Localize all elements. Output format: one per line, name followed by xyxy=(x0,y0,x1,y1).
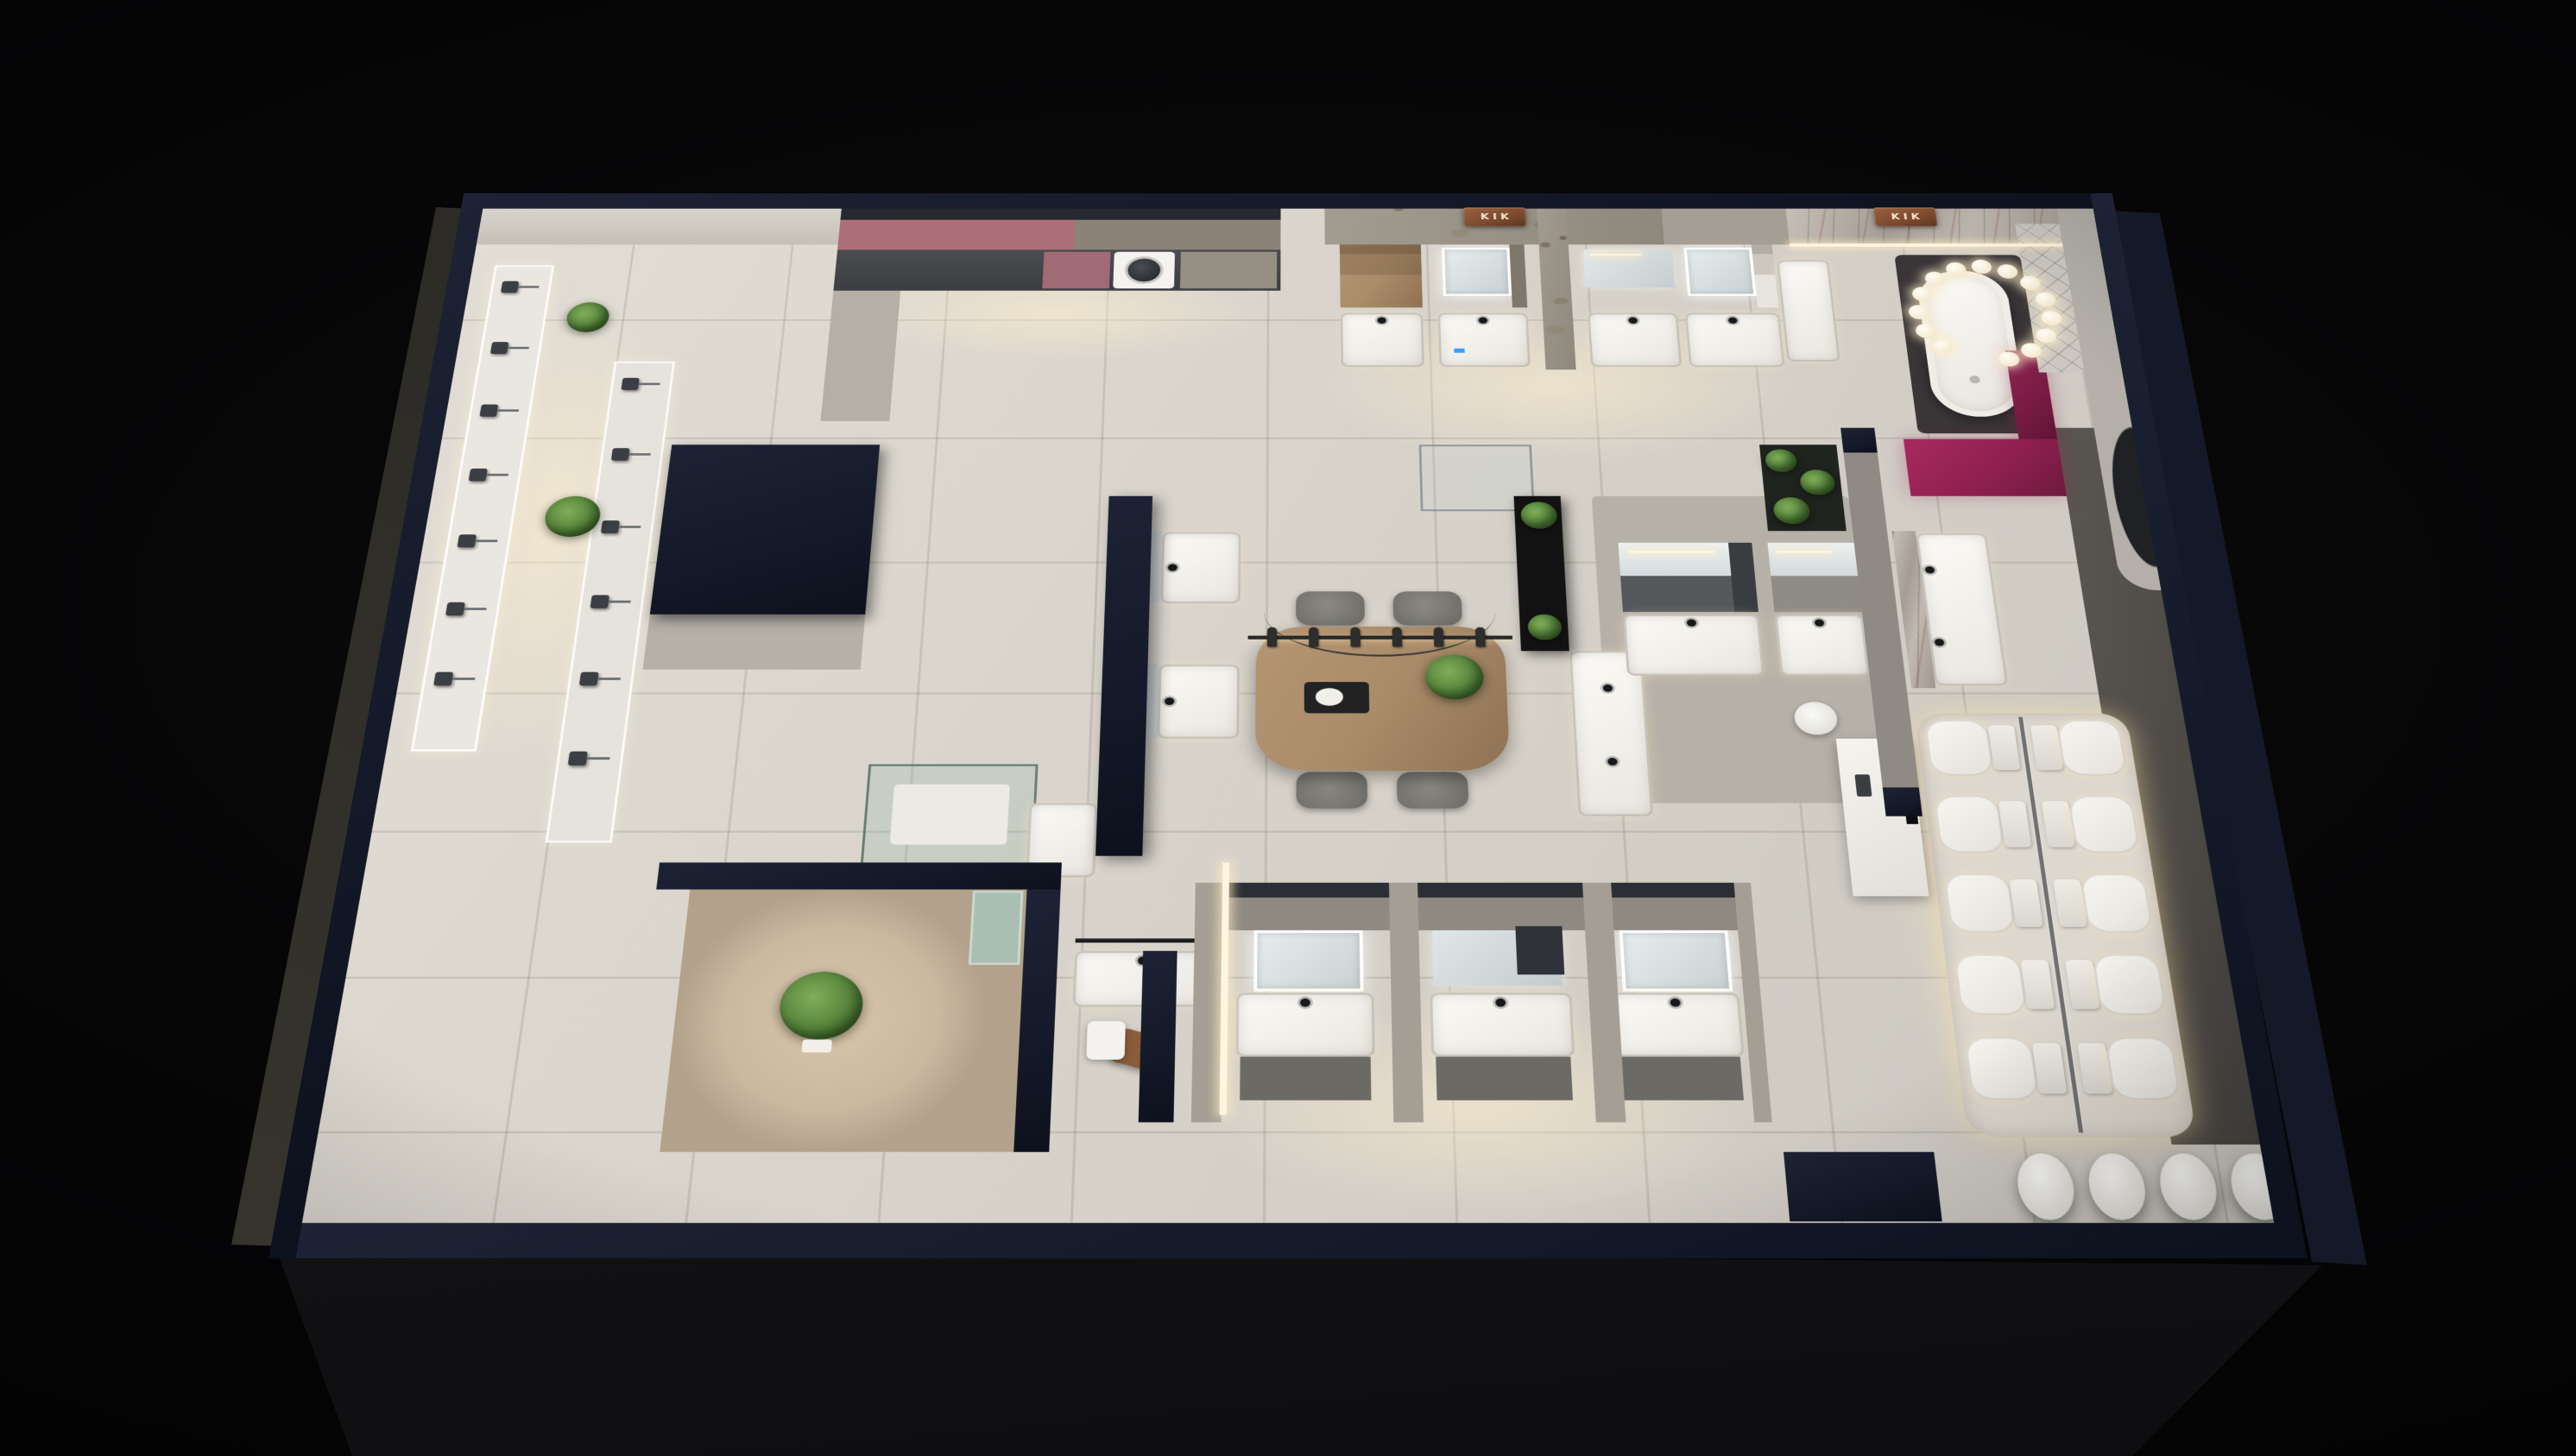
alcove-basin xyxy=(1430,993,1575,1056)
shower-arm xyxy=(497,409,519,412)
display-faucet xyxy=(1350,627,1360,647)
shower-head-display xyxy=(601,520,647,533)
alcove-cabinet xyxy=(1240,1056,1371,1100)
rain-shower-head xyxy=(579,672,599,686)
toilet-tank xyxy=(2010,879,2043,927)
niche-plant xyxy=(777,972,866,1040)
cabinet-top-strip xyxy=(841,209,1281,220)
mirror-strip xyxy=(1146,664,1159,739)
faucet xyxy=(1934,639,1944,646)
shower-head-display xyxy=(501,281,545,293)
toilet-tank xyxy=(1988,725,2021,770)
rain-shower-head xyxy=(433,672,453,686)
pink-cabinet-panel xyxy=(837,220,1075,250)
tray-cups xyxy=(1316,688,1343,705)
black-plant-column xyxy=(1514,496,1569,651)
navy-display-table xyxy=(650,444,880,615)
toilet xyxy=(1923,720,1995,776)
showroom-floor-plan: KIK KIK xyxy=(268,193,2308,1258)
chandelier-bulb xyxy=(1924,272,1947,286)
back-wall-inner-face xyxy=(477,209,842,245)
shower-tray xyxy=(890,785,1010,845)
brand-sign-stone: KIK xyxy=(1463,207,1525,225)
bubble-chandelier xyxy=(1903,260,2068,367)
faucet xyxy=(1165,697,1174,705)
shower-head-display xyxy=(568,752,616,766)
magenta-desk xyxy=(1904,439,2067,496)
faucet xyxy=(1603,684,1613,692)
toilet-tank xyxy=(2032,1043,2068,1094)
brand-sign-text: KIK xyxy=(1887,212,1924,222)
dark-shelf-box xyxy=(1515,926,1564,974)
shower-arm xyxy=(639,383,660,386)
alcove-cabinet xyxy=(1619,1056,1744,1100)
shelf-plant xyxy=(1527,615,1562,640)
partition-cap xyxy=(1840,428,1878,453)
green-wall-plant xyxy=(1772,497,1811,524)
mint-glass-cabinet xyxy=(969,891,1024,965)
partition-cap xyxy=(1883,787,1923,816)
chandelier-bulb xyxy=(1915,324,1937,338)
alcove-back-wall xyxy=(1195,883,1755,930)
living-green-wall xyxy=(1759,444,1847,531)
display-faucet xyxy=(1267,627,1277,647)
toilet xyxy=(2055,720,2128,776)
plant-pot xyxy=(801,1039,831,1052)
vanity-bay xyxy=(1436,244,1531,367)
alcove-divider xyxy=(1389,883,1424,1123)
mirror-led xyxy=(1777,551,1832,552)
control-panel xyxy=(1854,774,1872,797)
shower-head-display xyxy=(579,672,627,686)
vanity-island-charcoal xyxy=(1618,543,1765,676)
mirror-led xyxy=(1589,254,1641,255)
chandelier-bulb xyxy=(2020,344,2042,358)
faucet xyxy=(1300,999,1310,1007)
cove-light xyxy=(1790,243,2100,247)
towel xyxy=(1086,1021,1126,1060)
display-faucet xyxy=(1392,627,1402,647)
display-faucet xyxy=(1434,627,1444,647)
shelf-plant xyxy=(1520,502,1557,529)
mirror-led xyxy=(1628,551,1715,552)
alcove-basin xyxy=(1236,993,1375,1056)
rain-shower-head xyxy=(490,342,509,354)
shower-head-display xyxy=(445,602,492,615)
outer-wall-front xyxy=(268,1223,2308,1258)
toilet xyxy=(2104,1037,2181,1100)
island-return-counter xyxy=(820,291,900,421)
chandelier-bulb xyxy=(1932,339,1954,354)
faucet xyxy=(1628,318,1638,324)
table-plant xyxy=(1424,655,1484,700)
chandelier-bulb xyxy=(1911,287,1934,301)
tub-drain xyxy=(1969,375,1981,383)
laundry-counter xyxy=(833,249,1280,290)
shower-head-display xyxy=(433,672,481,686)
shower-head-display xyxy=(490,342,534,354)
toilet xyxy=(2091,954,2168,1015)
rain-shower-head xyxy=(568,752,588,766)
faucet xyxy=(1687,619,1697,626)
chandelier-bulb xyxy=(1908,305,1930,319)
faucet xyxy=(1728,318,1738,324)
glass-screen-frame xyxy=(1076,938,1212,942)
shower-head-display xyxy=(457,534,502,547)
chair xyxy=(1297,772,1368,808)
vanity-bay xyxy=(1340,244,1424,367)
rain-shower-head xyxy=(590,595,609,608)
navy-wall-stub xyxy=(1139,951,1178,1123)
vanity-island-greige xyxy=(1767,543,1869,676)
shower-arm xyxy=(518,286,540,287)
rain-shower-head xyxy=(621,378,639,390)
wood-shelf-unit xyxy=(1340,244,1423,307)
green-wall-plant xyxy=(1799,470,1836,495)
pendant-faucet-rail xyxy=(1248,636,1512,640)
shower-arm xyxy=(476,539,498,542)
mirror-strip xyxy=(1150,531,1163,602)
shower-head-display xyxy=(479,405,524,417)
faucet xyxy=(1815,619,1825,626)
toilet xyxy=(1943,873,2017,933)
dark-floor-mat xyxy=(1784,1152,1942,1221)
shower-arm xyxy=(452,678,476,680)
toilet xyxy=(1953,954,2028,1015)
green-wall-plant xyxy=(1765,450,1798,472)
faucet xyxy=(1377,318,1386,324)
led-mirror xyxy=(1442,248,1512,296)
rain-shower-head xyxy=(501,281,519,293)
vanity-bay xyxy=(1583,244,1683,367)
spine-vanity xyxy=(1157,665,1240,739)
shower-head-display xyxy=(621,378,665,390)
outer-wall-top xyxy=(461,193,2115,209)
shower-arm xyxy=(587,757,610,760)
chandelier-bulb xyxy=(1945,262,1967,276)
chair xyxy=(1397,772,1469,808)
shower-arm xyxy=(597,678,621,680)
greige-body xyxy=(1771,576,1862,612)
brand-sign-marble: KIK xyxy=(1873,207,1937,225)
freestanding-basin xyxy=(2085,1153,2150,1220)
toilet-tank xyxy=(1998,801,2031,847)
washer-door xyxy=(1127,259,1161,282)
rain-shower-head xyxy=(457,534,477,547)
laundry-upper-cabinets xyxy=(837,209,1280,250)
rain-shower-head xyxy=(611,448,630,460)
pink-door xyxy=(1042,252,1110,289)
showroom-render: KIK KIK xyxy=(0,0,2576,1456)
faucet xyxy=(1607,758,1618,766)
shower-arm xyxy=(486,474,508,476)
vanity-bay xyxy=(1679,244,1788,367)
alcove-led-mirror xyxy=(1619,930,1733,992)
island-mirror xyxy=(1767,543,1858,576)
shower-arm xyxy=(619,526,641,528)
faucet xyxy=(1479,318,1488,324)
gray-counter xyxy=(642,615,865,670)
faucet xyxy=(1670,999,1681,1007)
alcove-wall-top xyxy=(1196,883,1752,898)
rain-shower-head xyxy=(469,469,488,482)
price-tag xyxy=(1454,349,1464,353)
rain-shower-head xyxy=(445,602,465,615)
chandelier-bulb xyxy=(2035,329,2057,344)
faucet xyxy=(1495,999,1506,1007)
chandelier-bulb xyxy=(2034,292,2056,306)
rain-shower-head xyxy=(601,520,620,533)
white-shelf-unit xyxy=(1752,244,1779,307)
toilet xyxy=(1964,1037,2041,1100)
taupe-doors xyxy=(1180,252,1277,289)
brand-sign-text: KIK xyxy=(1477,212,1513,222)
chandelier-bulb xyxy=(2040,311,2062,325)
display-faucet xyxy=(1475,627,1486,647)
shower-head-display xyxy=(590,595,637,608)
chandelier-bulb xyxy=(1997,264,2019,278)
shower-head-display xyxy=(611,448,656,460)
chandelier-bulb xyxy=(1971,260,1993,274)
spine-vanity xyxy=(1160,533,1241,604)
navy-wall-horizontal xyxy=(656,862,1062,889)
serving-tray xyxy=(1304,682,1370,713)
toilet-tank xyxy=(2021,960,2055,1009)
glass-shower-room xyxy=(861,764,1039,867)
washing-machine xyxy=(1113,252,1175,289)
shower-arm xyxy=(609,601,631,603)
freestanding-basin xyxy=(2014,1153,2079,1220)
shower-arm xyxy=(508,347,529,350)
taupe-cabinet-panel xyxy=(1074,220,1281,250)
toilet xyxy=(2067,795,2141,853)
freestanding-basin xyxy=(2156,1153,2222,1220)
chandelier-bulb xyxy=(1998,352,2020,367)
shower-arm xyxy=(464,608,486,610)
basin-counter xyxy=(1569,651,1653,816)
alcove-led-mirror xyxy=(1253,930,1363,992)
chandelier-bulb xyxy=(2019,276,2042,290)
toilet xyxy=(2079,873,2154,933)
display-faucet xyxy=(1309,627,1318,647)
shower-arm xyxy=(628,453,650,456)
faucet xyxy=(1168,564,1178,570)
shower-head-display xyxy=(469,469,515,482)
alcove-cabinet xyxy=(1436,1056,1573,1100)
led-mirror xyxy=(1683,248,1756,296)
rain-shower-head xyxy=(479,405,498,417)
toilet xyxy=(1933,795,2005,853)
faucet xyxy=(1925,566,1935,573)
alcove-basin xyxy=(1610,993,1745,1056)
